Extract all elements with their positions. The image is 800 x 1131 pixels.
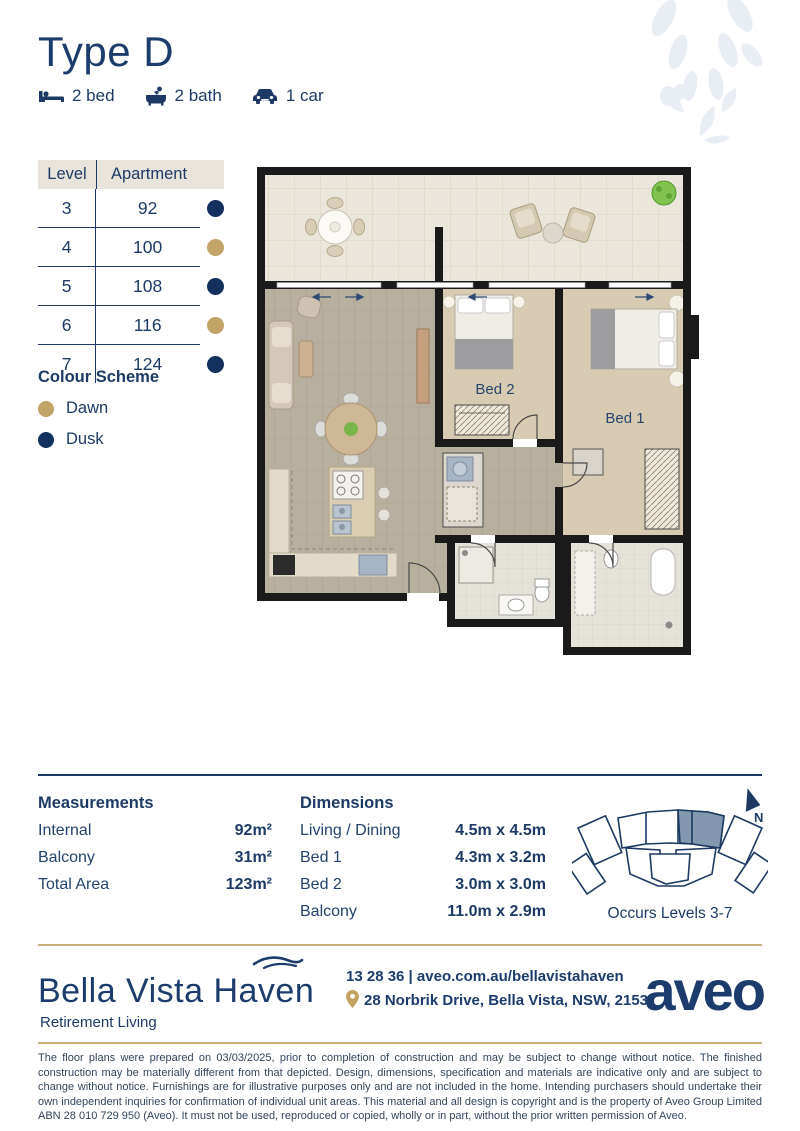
car-icon — [252, 87, 278, 105]
dimension-row: Balcony 11.0m x 2.9m — [300, 903, 546, 921]
footer-rule-top — [38, 944, 762, 946]
feature-bath: 2 bath — [145, 86, 222, 106]
scheme-dot — [207, 317, 224, 334]
disclaimer-text: The floor plans were prepared on 03/03/2… — [38, 1051, 762, 1124]
cell-level: 3 — [38, 189, 96, 227]
colour-scheme: Colour Scheme Dawn Dusk — [38, 368, 159, 449]
measurement-label: Internal — [38, 822, 91, 840]
measurement-label: Balcony — [38, 849, 95, 867]
feature-car-label: 1 car — [286, 86, 324, 106]
scheme-dot — [207, 200, 224, 217]
aveo-logo: aveo — [644, 958, 764, 1023]
dimension-label: Balcony — [300, 903, 357, 921]
footer-rule-bottom — [38, 1042, 762, 1044]
cell-apartment: 92 — [96, 189, 199, 227]
availability-table: Level Apartment 3 92 4 100 5 108 — [38, 160, 224, 383]
measurement-value: 92m² — [235, 822, 272, 840]
feature-car: 1 car — [252, 86, 324, 106]
brochure-page: Type D 2 bed 2 bath — [0, 0, 800, 1131]
table-row: 3 92 — [38, 189, 224, 227]
measurements-block: Measurements Internal 92m² Balcony 31m² … — [38, 794, 272, 894]
leaf-watermark — [612, 0, 792, 160]
colour-scheme-title: Colour Scheme — [38, 368, 159, 387]
measurement-row: Total Area 123m² — [38, 876, 272, 894]
bath-icon — [145, 86, 167, 106]
dimension-label: Bed 1 — [300, 849, 342, 867]
key-plan-svg: N — [572, 782, 768, 900]
brand-tagline: Retirement Living — [40, 1014, 157, 1031]
bed1-room-label: Bed 1 — [605, 410, 644, 427]
cell-apartment: 116 — [96, 306, 199, 344]
table-row: 4 100 — [38, 228, 224, 266]
availability-table-header: Level Apartment — [38, 160, 224, 189]
key-plan-caption: Occurs Levels 3-7 — [572, 905, 768, 923]
cell-apartment: 100 — [96, 228, 199, 266]
dimension-row: Bed 2 3.0m x 3.0m — [300, 876, 546, 894]
measurement-label: Total Area — [38, 876, 109, 894]
cell-level: 6 — [38, 306, 96, 344]
legend-item-dusk: Dusk — [38, 430, 159, 449]
page-title: Type D — [38, 28, 174, 76]
north-arrow — [739, 786, 761, 812]
dimension-label: Living / Dining — [300, 822, 401, 840]
cell-level: 4 — [38, 228, 96, 266]
scheme-dot — [207, 356, 224, 373]
dimension-row: Bed 1 4.3m x 3.2m — [300, 849, 546, 867]
scheme-dot — [207, 278, 224, 295]
cell-level: 5 — [38, 267, 96, 305]
laundry — [443, 453, 483, 527]
floor-plan: Bed 2 Bed 1 — [243, 163, 703, 663]
bed-icon — [38, 87, 64, 105]
feature-bath-label: 2 bath — [175, 86, 222, 106]
location-pin-icon — [346, 990, 359, 1008]
scheme-dot — [207, 239, 224, 256]
measurement-row: Internal 92m² — [38, 822, 272, 840]
measurement-value: 123m² — [226, 876, 272, 894]
bed2-room-label: Bed 2 — [475, 381, 514, 398]
feature-row: 2 bed 2 bath 1 car — [38, 86, 324, 106]
col-header-level: Level — [38, 160, 97, 189]
measurement-row: Balcony 31m² — [38, 849, 272, 867]
feature-bed: 2 bed — [38, 86, 115, 106]
contact-line: 13 28 36 | aveo.com.au/bellavistahaven — [346, 968, 624, 985]
brand-name: Bella Vista Haven — [38, 972, 314, 1011]
section-divider — [38, 774, 762, 776]
dusk-label: Dusk — [66, 430, 104, 449]
cell-apartment: 108 — [96, 267, 199, 305]
dimensions-title: Dimensions — [300, 794, 546, 813]
address-line: 28 Norbrik Drive, Bella Vista, NSW, 2153 — [364, 992, 648, 1009]
dimension-row: Living / Dining 4.5m x 4.5m — [300, 822, 546, 840]
dimension-value: 11.0m x 2.9m — [447, 903, 546, 921]
dimension-value: 4.3m x 3.2m — [455, 849, 546, 867]
dimensions-block: Dimensions Living / Dining 4.5m x 4.5m B… — [300, 794, 546, 921]
legend-item-dawn: Dawn — [38, 399, 159, 418]
dimension-value: 4.5m x 4.5m — [455, 822, 546, 840]
dawn-label: Dawn — [66, 399, 108, 418]
dusk-dot — [38, 432, 54, 448]
wave-icon — [252, 952, 304, 970]
table-row: 5 108 — [38, 267, 224, 305]
dawn-dot — [38, 401, 54, 417]
dimension-label: Bed 2 — [300, 876, 342, 894]
col-header-apartment: Apartment — [97, 160, 201, 189]
dimension-value: 3.0m x 3.0m — [455, 876, 546, 894]
table-row: 6 116 — [38, 306, 224, 344]
measurement-value: 31m² — [235, 849, 272, 867]
key-plan: N Occurs Levels 3-7 — [572, 782, 768, 923]
feature-bed-label: 2 bed — [72, 86, 115, 106]
measurements-title: Measurements — [38, 794, 272, 813]
north-label: N — [754, 810, 763, 825]
